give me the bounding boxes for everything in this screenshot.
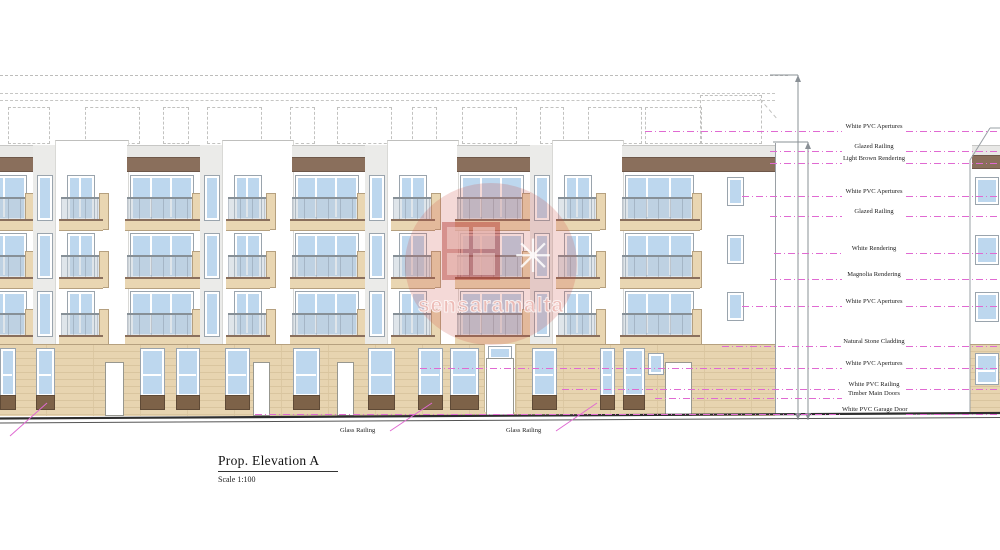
- annotation-leader-line: [722, 346, 842, 347]
- annotation-leader-line: [906, 216, 1000, 217]
- annotation-leader-line: [906, 346, 1000, 347]
- annotation-leader-line: [906, 368, 1000, 369]
- annotation-label: White PVC Apertures: [842, 298, 906, 307]
- annotation-label: Light Brown Rendering: [842, 155, 906, 164]
- annotation-label: White PVC Garage Door: [842, 406, 906, 415]
- annotation-leader-line: [906, 414, 1000, 415]
- annotation-leader-line: [774, 253, 842, 254]
- annotation-label: White PVC Apertures: [842, 188, 906, 197]
- annotation-column: White PVC AperturesGlazed RailingLight B…: [0, 0, 1000, 550]
- annotation-leader-line: [906, 389, 1000, 390]
- annotation-label: White PVC Railing: [842, 381, 906, 390]
- title-underline: [218, 471, 338, 472]
- annotation-leader-line: [906, 306, 1000, 307]
- annotation-label: White PVC Apertures: [842, 123, 906, 132]
- annotation-leader-line: [770, 163, 842, 164]
- annotation-label: Glazed Railing: [842, 208, 906, 217]
- annotation-leader-line: [906, 151, 1000, 152]
- annotation-leader-line: [770, 279, 842, 280]
- annotation-leader-line: [420, 368, 842, 369]
- annotation-leader-line: [906, 163, 1000, 164]
- annotation-label: Timber Main Doors: [842, 390, 906, 399]
- annotation-label: Glazed Railing: [842, 143, 906, 152]
- annotation-leader-line: [645, 131, 842, 132]
- glass-railing-label: Glass Railing: [340, 427, 390, 436]
- elevation-drawing-canvas: ✳ sensaramalta White PVC AperturesGlazed…: [0, 0, 1000, 550]
- annotation-label: White PVC Apertures: [842, 360, 906, 369]
- annotation-leader-line: [906, 196, 1000, 197]
- drawing-title: Prop. Elevation A: [218, 453, 338, 469]
- title-block: Prop. Elevation A Scale 1:100: [218, 453, 338, 484]
- annotation-leader-line: [906, 131, 1000, 132]
- annotation-leader-line: [742, 196, 842, 197]
- annotation-leader-line: [562, 389, 842, 390]
- drawing-scale: Scale 1:100: [218, 475, 338, 484]
- glass-railing-label: Glass Railing: [0, 430, 12, 439]
- annotation-label: Natural Stone Cladding: [842, 338, 906, 347]
- annotation-leader-line: [742, 306, 842, 307]
- annotation-leader-line: [770, 151, 842, 152]
- glass-railing-label: Glass Railing: [506, 427, 556, 436]
- annotation-label: Magnolia Rendering: [842, 271, 906, 280]
- annotation-leader-line: [906, 253, 1000, 254]
- annotation-label: White Rendering: [842, 245, 906, 254]
- annotation-leader-line: [655, 398, 842, 399]
- annotation-leader-line: [906, 279, 1000, 280]
- annotation-leader-line: [770, 216, 842, 217]
- annotation-leader-line: [255, 414, 842, 415]
